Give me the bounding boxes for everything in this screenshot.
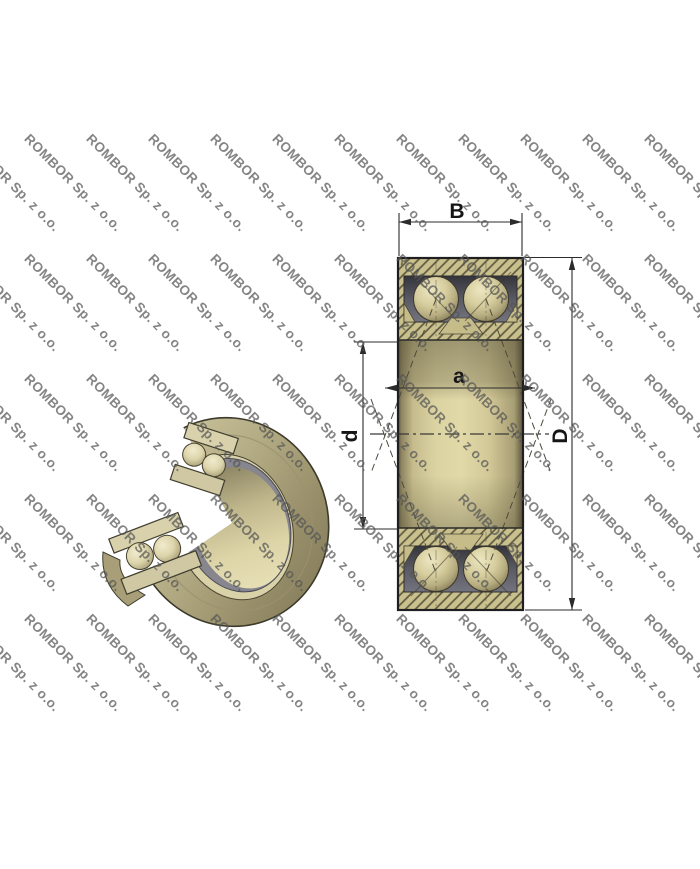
arrowhead-right bbox=[510, 219, 522, 225]
product-image: B a d bbox=[0, 0, 700, 869]
dimension-B: B bbox=[399, 200, 522, 256]
section-bottom-band bbox=[398, 528, 523, 610]
bearing-cross-section: B a d bbox=[339, 200, 582, 610]
dimension-label-B: B bbox=[449, 200, 464, 223]
dimension-label-d: d bbox=[339, 430, 362, 443]
arrowhead-down bbox=[360, 517, 366, 529]
section-top-band bbox=[398, 258, 523, 340]
dimension-label-a: a bbox=[453, 365, 465, 388]
dimension-d: d bbox=[339, 342, 398, 529]
arrowhead-up bbox=[360, 342, 366, 354]
bearing-3d-render bbox=[70, 388, 356, 652]
arrowhead-left bbox=[385, 385, 397, 391]
dimension-label-D: D bbox=[549, 428, 572, 443]
arrowhead-up bbox=[569, 258, 575, 270]
arrowhead-down bbox=[569, 598, 575, 610]
bearing-figure: B a d bbox=[0, 0, 700, 869]
arrowhead-left bbox=[399, 219, 411, 225]
arrowhead-right bbox=[523, 385, 535, 391]
